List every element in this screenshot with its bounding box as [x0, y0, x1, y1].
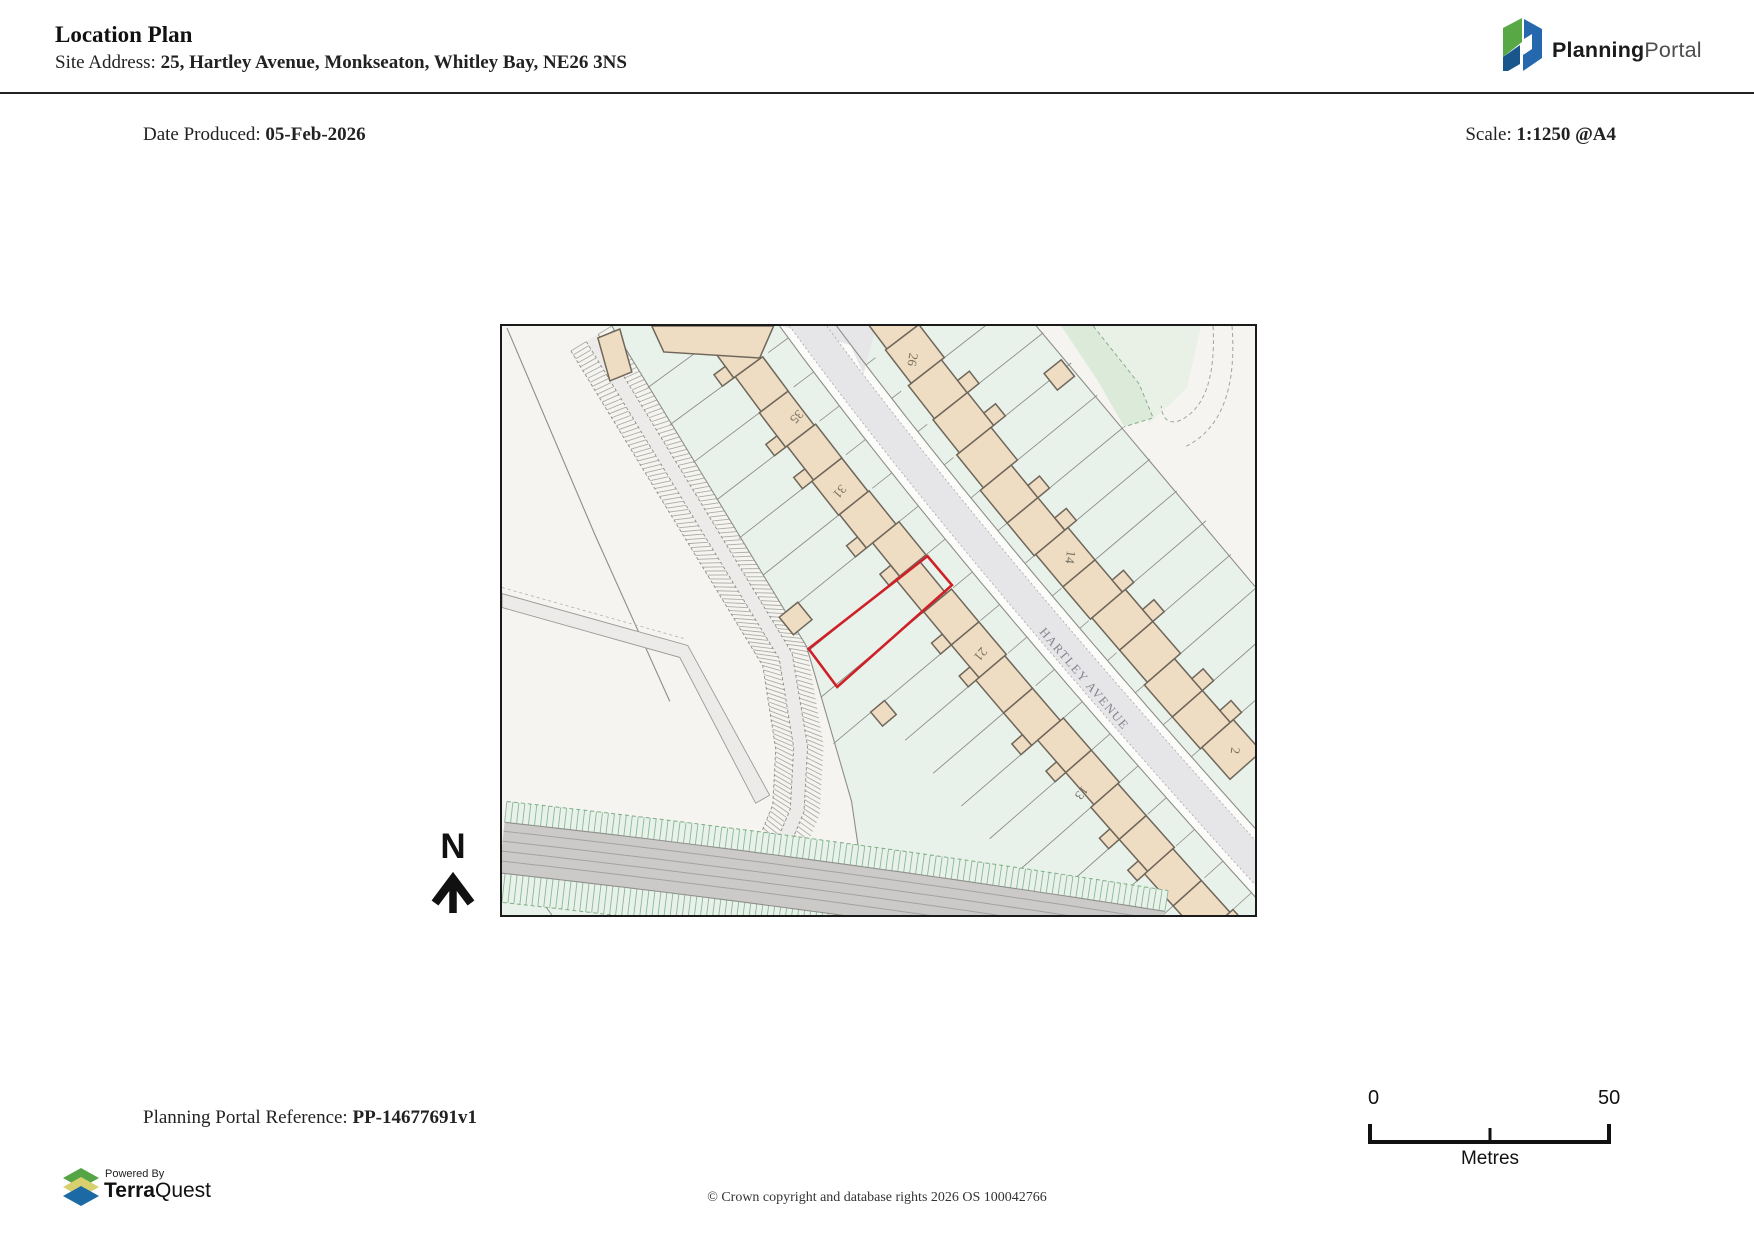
svg-text:0: 0	[1368, 1087, 1379, 1109]
svg-text:N: N	[440, 827, 465, 866]
svg-text:PlanningPortal: PlanningPortal	[1552, 38, 1702, 62]
svg-text:50: 50	[1598, 1087, 1620, 1109]
svg-text:14: 14	[1062, 550, 1079, 565]
svg-text:Metres: Metres	[1461, 1148, 1519, 1169]
